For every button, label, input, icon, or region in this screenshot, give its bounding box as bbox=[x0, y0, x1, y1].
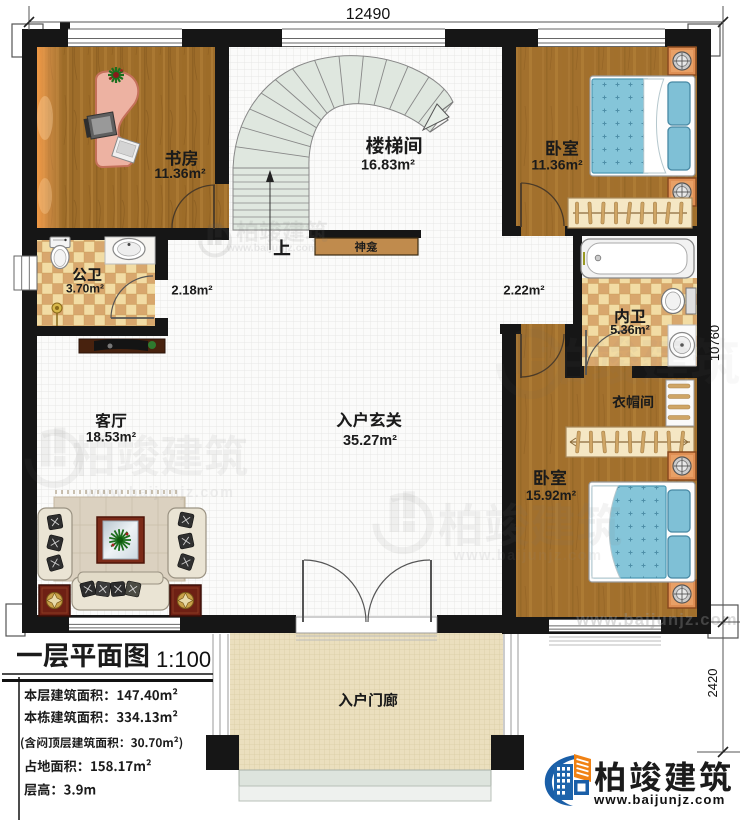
svg-text:2420: 2420 bbox=[705, 669, 720, 698]
svg-text:www.baijunjz.com: www.baijunjz.com bbox=[452, 548, 602, 564]
svg-text:11.36m²: 11.36m² bbox=[531, 157, 583, 173]
svg-text:1:100: 1:100 bbox=[156, 647, 211, 672]
svg-text:www.baijunjz.com: www.baijunjz.com bbox=[593, 792, 725, 807]
svg-text:3.70m²: 3.70m² bbox=[66, 282, 104, 296]
svg-text:11.36m²: 11.36m² bbox=[154, 165, 206, 181]
svg-text:35.27m²: 35.27m² bbox=[343, 433, 397, 449]
svg-text:5.36m²: 5.36m² bbox=[610, 323, 650, 337]
svg-text:15.92m²: 15.92m² bbox=[526, 488, 577, 503]
svg-text:2.22m²: 2.22m² bbox=[503, 283, 545, 298]
svg-text:16.83m²: 16.83m² bbox=[361, 158, 415, 174]
svg-text:www.baijunjz.com: www.baijunjz.com bbox=[226, 242, 318, 254]
svg-text:12490: 12490 bbox=[346, 6, 391, 23]
svg-text:18.53m²: 18.53m² bbox=[86, 430, 137, 445]
svg-text:10760: 10760 bbox=[707, 325, 722, 361]
svg-text:www.baijunjz.com: www.baijunjz.com bbox=[84, 485, 234, 501]
svg-text:www.baijunjz.com: www.baijunjz.com bbox=[575, 611, 738, 629]
svg-text:2.18m²: 2.18m² bbox=[171, 283, 213, 298]
